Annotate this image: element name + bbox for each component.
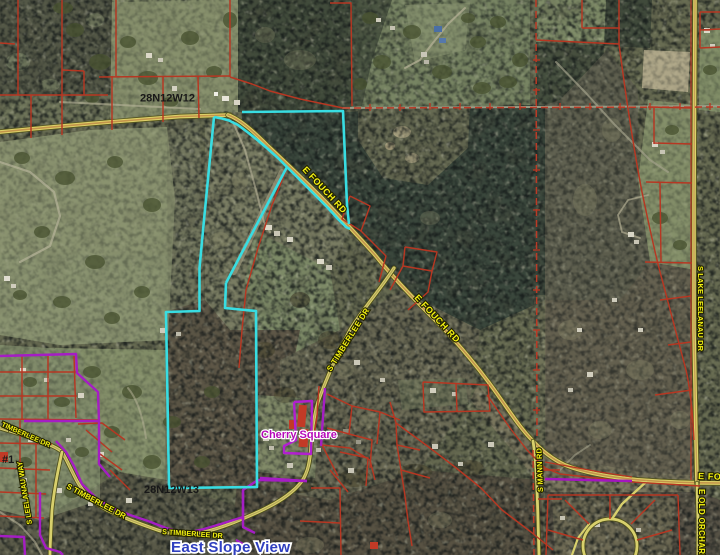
svg-text:S MANN RD: S MANN RD	[534, 447, 545, 492]
svg-text:28N12W13: 28N12W13	[144, 484, 199, 496]
svg-text:#1: #1	[2, 454, 14, 466]
svg-text:Cherry Square: Cherry Square	[261, 429, 337, 441]
svg-text:28N12W12: 28N12W12	[140, 93, 195, 105]
svg-text:E OLD ORCHARD RD: E OLD ORCHARD RD	[697, 489, 706, 555]
svg-text:East Slope View: East Slope View	[171, 539, 290, 555]
svg-text:S LAKE LEELANAU DR: S LAKE LEELANAU DR	[696, 266, 705, 352]
